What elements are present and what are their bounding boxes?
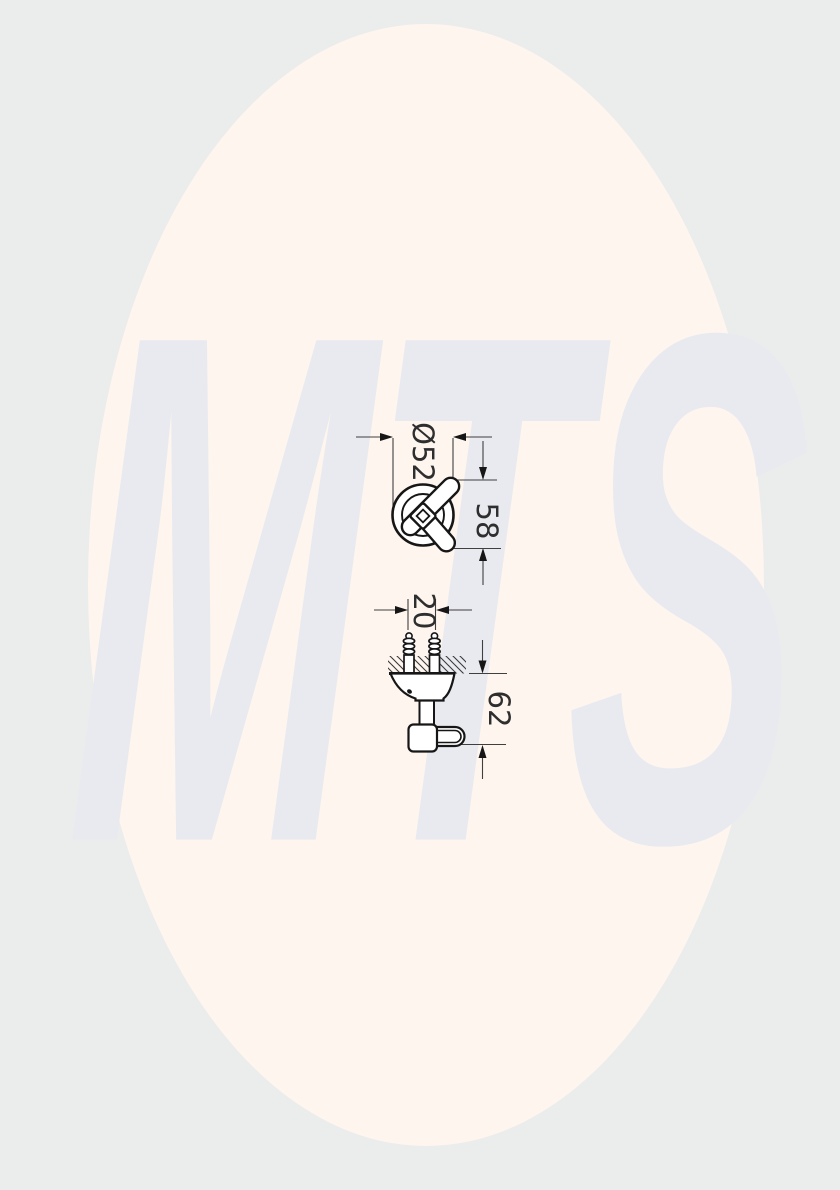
- technical-drawing: Ø52 58: [0, 0, 840, 1190]
- screw-thread: [403, 649, 414, 654]
- arrowhead-right-icon: [395, 606, 408, 614]
- side-view: 20 62: [374, 593, 516, 779]
- screw-thread: [429, 649, 440, 654]
- dim-hole-spacing: 20: [374, 593, 472, 630]
- hook-stem: [420, 700, 435, 727]
- arrowhead-down-icon: [479, 661, 487, 674]
- screw-left: [403, 633, 414, 674]
- arrowhead-down-icon: [479, 467, 487, 480]
- arrowhead-left-icon: [453, 433, 466, 441]
- front-view: Ø52 58: [356, 422, 504, 585]
- arrowhead-right-icon: [380, 433, 393, 441]
- hook-bracket: [409, 725, 438, 752]
- screw-shank: [404, 655, 414, 674]
- dim-label-hole-spacing: 20: [407, 593, 441, 630]
- dim-label-projection: 62: [482, 691, 516, 728]
- dim-projection: 62: [461, 640, 516, 779]
- screw-right: [429, 633, 440, 674]
- mounting-bell: [391, 674, 455, 701]
- dim-label-diameter: Ø52: [406, 422, 440, 482]
- drawing-sheet: MTS Ø52: [0, 0, 840, 1190]
- arrowhead-up-icon: [479, 548, 487, 561]
- arrowhead-up-icon: [479, 745, 487, 758]
- dim-front-height: 58: [449, 441, 504, 585]
- screw-shank: [430, 655, 440, 674]
- dim-label-front-height: 58: [470, 503, 504, 540]
- wall-hatch: [388, 656, 466, 674]
